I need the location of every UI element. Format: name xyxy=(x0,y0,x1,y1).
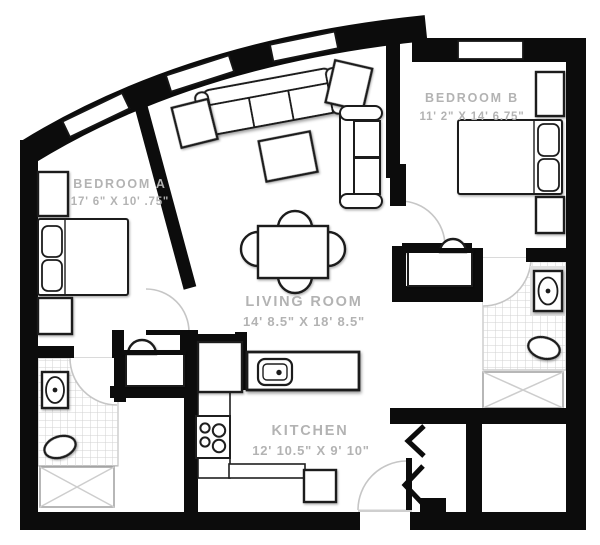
dining-set xyxy=(241,211,345,293)
closet-left-wall xyxy=(466,408,482,512)
bottom-wall-left xyxy=(20,512,360,530)
kitchen-label: KITCHEN xyxy=(271,423,348,439)
vanity1-bottom-wall xyxy=(110,386,190,398)
refrigerator xyxy=(198,342,242,392)
bed-b-pillow-1 xyxy=(538,124,559,156)
dishwasher xyxy=(304,470,336,502)
stove xyxy=(196,416,230,458)
bedroom-b-left-wall xyxy=(386,38,400,178)
closet-door-chevron-1 xyxy=(408,426,424,456)
kitchen-island xyxy=(247,352,359,390)
armchair-left xyxy=(172,99,218,148)
burner xyxy=(213,424,225,436)
loveseat xyxy=(340,106,382,208)
kitchen-fixtures xyxy=(196,342,359,502)
entry-threshold xyxy=(358,510,412,513)
bed-a-pillow-2 xyxy=(42,260,62,291)
bath2-shower xyxy=(483,372,563,408)
counter-bottom xyxy=(229,464,305,478)
nightstand-b-bottom xyxy=(536,197,564,233)
bedroom-a-door-arc xyxy=(146,289,189,332)
bath2-top-wall xyxy=(526,248,566,262)
bedroom-a-dims: 17' 6" X 10' .75" xyxy=(71,196,169,208)
bed-b-pillow-2 xyxy=(538,159,559,191)
bedroom-a-label: BEDROOM A xyxy=(73,177,167,191)
dining-chair-right xyxy=(328,232,345,266)
nook-bottom-wall xyxy=(392,286,472,302)
burner xyxy=(200,423,209,432)
living-room-label: LIVING ROOM xyxy=(245,294,362,310)
bottom-wall-right xyxy=(410,512,586,530)
bath1-top-wall xyxy=(38,346,74,358)
entry-door-arc xyxy=(358,461,406,510)
loveseat-arm-top xyxy=(340,106,382,120)
bedroom-b-label: BEDROOM B xyxy=(425,91,519,105)
vanity1-edge xyxy=(122,350,186,355)
vanity2-counter xyxy=(408,252,472,286)
coffee-table xyxy=(259,131,318,181)
bath1-shower xyxy=(40,467,114,507)
entry-top-wall xyxy=(390,408,580,424)
hall-stub xyxy=(390,164,406,206)
nightstand-a-top xyxy=(38,172,68,216)
living-room-furniture xyxy=(172,60,382,293)
vanity1-counter xyxy=(126,354,184,386)
burner xyxy=(200,437,209,446)
window-4 xyxy=(458,41,523,59)
left-wall xyxy=(20,140,38,530)
loveseat-arm-bottom xyxy=(340,194,382,208)
burner xyxy=(213,440,225,452)
bedroom-b-dims: 11' 2" X 14' 6.75" xyxy=(420,111,525,123)
vanity-1 xyxy=(122,340,186,386)
bath1-sink xyxy=(42,372,68,408)
bath2-sink xyxy=(534,271,562,311)
bed-a-pillow-1 xyxy=(42,226,62,257)
floor-plan: BEDROOM A 17' 6" X 10' .75" BEDROOM B 11… xyxy=(0,0,600,545)
closet-door-foot xyxy=(420,498,446,512)
bedroom-b-door-arc xyxy=(400,201,445,246)
kitchen-dims: 12' 10.5" X 9' 10" xyxy=(252,443,369,458)
living-room-dims: 14' 8.5" X 18' 8.5" xyxy=(243,314,365,329)
dining-chair-left xyxy=(241,232,258,266)
right-wall xyxy=(566,38,586,530)
armchair-right xyxy=(326,60,373,110)
island-sink-drain xyxy=(276,370,281,375)
nightstand-b-top xyxy=(536,72,564,116)
vanity2-edge xyxy=(404,248,474,253)
nightstand-a-bottom xyxy=(38,298,72,334)
dining-table xyxy=(258,226,328,278)
